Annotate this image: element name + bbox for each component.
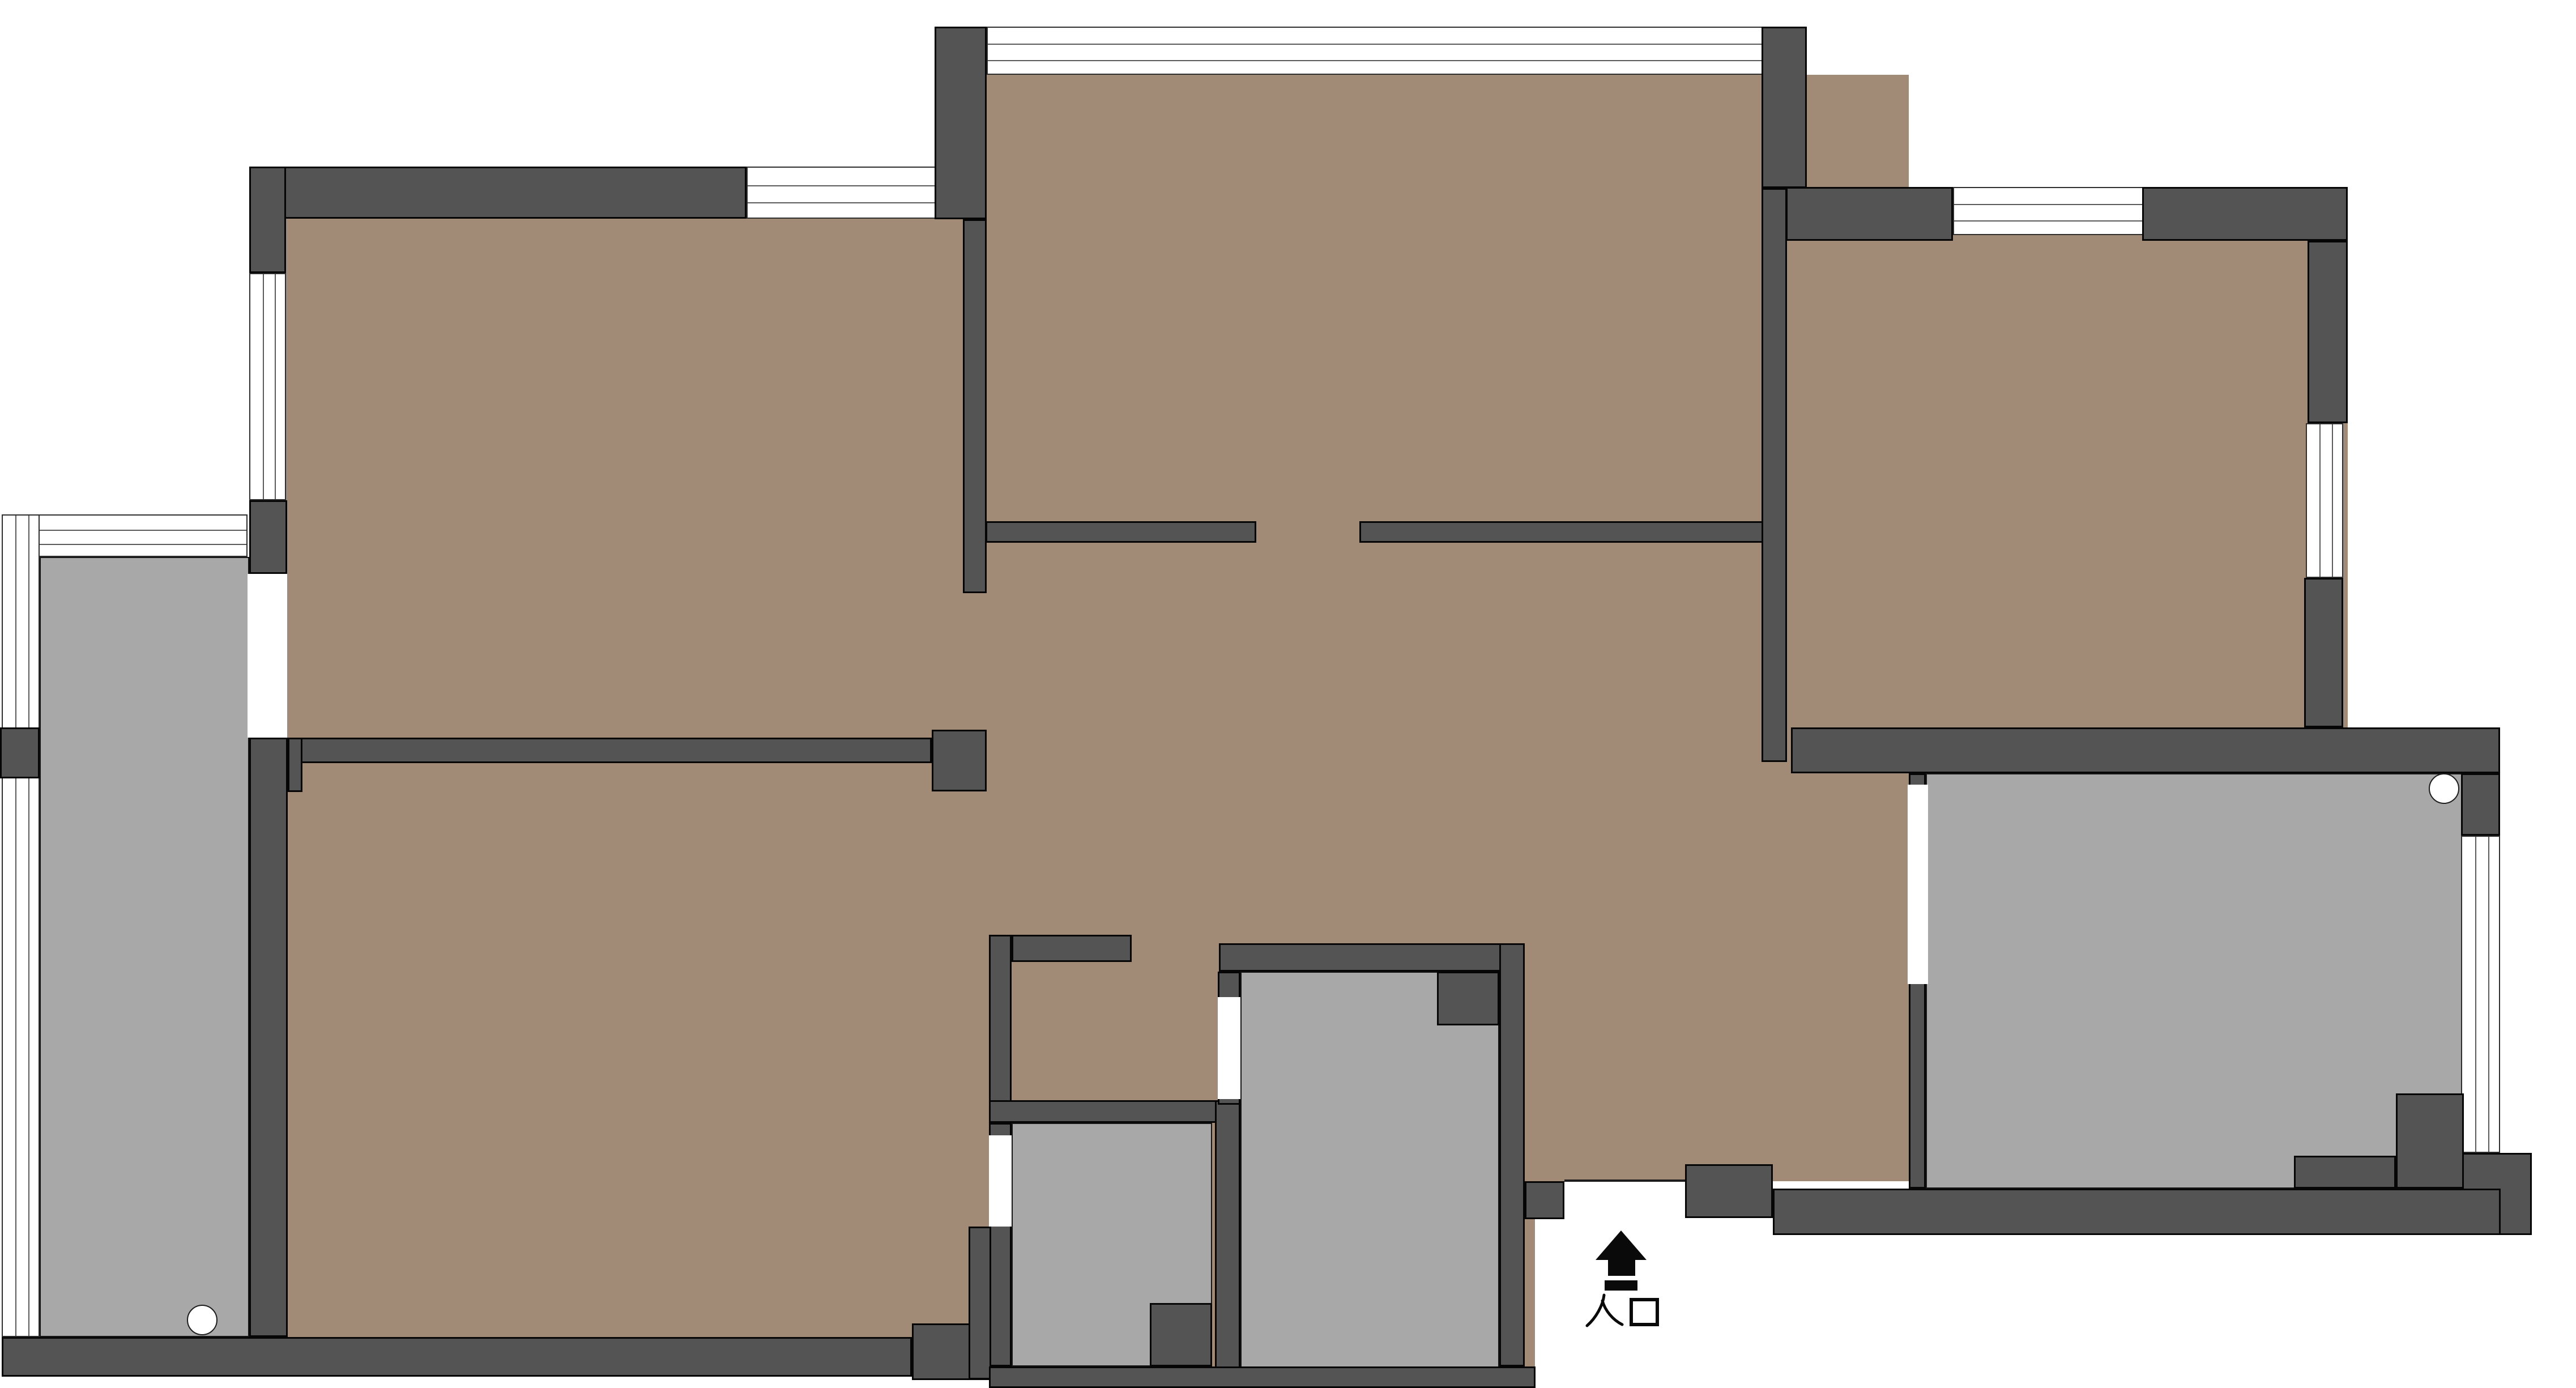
window-bathroom-right-side-pane-line bbox=[2488, 837, 2489, 1152]
wall-center-post-left bbox=[935, 27, 987, 219]
window-top-right-side-pane-line bbox=[2319, 424, 2321, 577]
wall-center-left bbox=[963, 219, 987, 593]
window-top-center-pane-line bbox=[988, 60, 1767, 61]
wall-divider-left bbox=[249, 738, 932, 763]
opening-bathroom-right-door bbox=[1908, 785, 1928, 984]
window-balcony-side-pane-line bbox=[15, 516, 16, 1336]
opening-bathroom-small-door bbox=[989, 1135, 1012, 1227]
window-top-right-side-pane-line bbox=[2332, 424, 2333, 577]
wall-hall-hook-horizontal bbox=[1012, 935, 1132, 962]
wall-top-right-side-lower bbox=[2304, 578, 2343, 727]
window-balcony-side bbox=[2, 514, 40, 1337]
wall-t-arm-left bbox=[986, 521, 1256, 543]
wall-bottom-right bbox=[1773, 1189, 2501, 1235]
wall-bathroom-small-top bbox=[989, 1100, 1236, 1123]
entrance-arrow-icon bbox=[1596, 1231, 1647, 1260]
wall-gray-room-ne-corner bbox=[2461, 773, 2500, 836]
window-top-right-top-pane-line bbox=[1954, 220, 2142, 222]
wall-entry-stub-left bbox=[1525, 1181, 1564, 1219]
wall-top-right-top-left bbox=[1786, 187, 1953, 241]
wall-kitchen-top bbox=[1219, 943, 1525, 972]
wall-gray-step-low bbox=[2294, 1156, 2396, 1189]
floor-plan-canvas: 入口 bbox=[0, 0, 2576, 1388]
entrance-threshold-line bbox=[1564, 1180, 1685, 1182]
window-top-right-top-pane-line bbox=[1954, 204, 2142, 205]
wall-t-arm-right bbox=[1359, 521, 1764, 543]
floor-bathroom-right bbox=[1926, 773, 2464, 1189]
window-top-left-side-pane-line bbox=[275, 274, 276, 499]
wall-bottom-center bbox=[989, 1366, 1536, 1388]
window-top-left-side bbox=[249, 273, 286, 500]
window-top-right-side bbox=[2306, 423, 2343, 578]
window-top-left-top-pane-line bbox=[748, 185, 935, 186]
window-bathroom-right-side bbox=[2461, 836, 2500, 1153]
wall-center-post-right bbox=[1762, 27, 1807, 188]
wall-bathroom-small-block bbox=[1150, 1303, 1212, 1366]
entrance-label: 入口 bbox=[1585, 1289, 1670, 1327]
window-bathroom-right-side-pane-line bbox=[2475, 837, 2476, 1152]
wall-bottom-left-room-step bbox=[288, 738, 302, 792]
wall-kitchen-right bbox=[1499, 943, 1525, 1366]
wall-bottom-left bbox=[2, 1337, 912, 1377]
wall-top-left-top bbox=[249, 167, 747, 219]
wall-top-left-side-upper bbox=[249, 167, 286, 273]
window-top-center-pane-line bbox=[988, 44, 1767, 45]
floor-bedroom-top-right bbox=[1787, 188, 2348, 773]
wall-kitchen-block bbox=[1437, 972, 1499, 1025]
floor-balcony-left bbox=[40, 557, 249, 1337]
wall-balcony-pillar-west bbox=[0, 727, 40, 778]
entrance-arrow-stem bbox=[1608, 1260, 1635, 1276]
floor-bedrooms-left bbox=[249, 167, 988, 1377]
window-top-right-top bbox=[1953, 187, 2143, 235]
window-top-center bbox=[987, 27, 1768, 75]
wall-top-right-ne-corner bbox=[2308, 241, 2348, 423]
wall-balcony-pillar-ne bbox=[249, 500, 287, 574]
window-top-left-top bbox=[747, 167, 936, 219]
wall-bathroom-small-right bbox=[1215, 1100, 1240, 1388]
opening-kitchen-door bbox=[1218, 997, 1240, 1099]
opening-balcony-door bbox=[248, 574, 287, 738]
wall-hall-right-vertical bbox=[1762, 188, 1787, 762]
wall-divider-pillar bbox=[932, 730, 987, 791]
wall-top-right-top-right bbox=[2142, 187, 2348, 241]
wall-gray-room-divider bbox=[1791, 727, 2500, 773]
window-balcony-side-pane-line bbox=[28, 516, 29, 1336]
wall-bottom-left-room-left bbox=[249, 738, 288, 1337]
door-dot-balcony bbox=[187, 1305, 217, 1335]
wall-gray-step-high bbox=[2396, 1093, 2464, 1189]
window-top-left-top-pane-line bbox=[748, 202, 935, 203]
floor-kitchen bbox=[1240, 972, 1499, 1368]
window-top-left-side-pane-line bbox=[263, 274, 264, 499]
wall-entry-stub-right bbox=[1685, 1164, 1773, 1218]
door-dot-bathroom-right bbox=[2429, 773, 2459, 804]
wall-bathroom-small-left-lower bbox=[969, 1227, 991, 1380]
